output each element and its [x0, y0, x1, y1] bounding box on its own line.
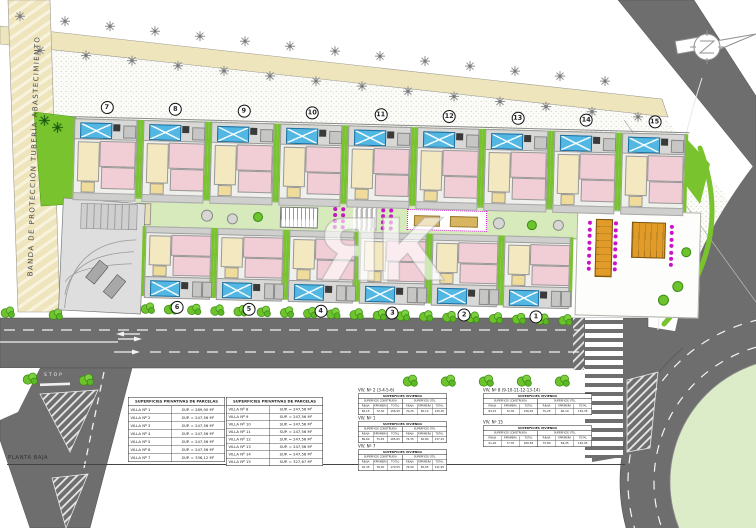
dwelling-table-box: SUPERFICIES VIVIENDASUPERFICIE CONSTRUID…: [358, 394, 447, 416]
dwelling-table-box: SUPERFICIES VIVIENDASUPERFICIE CONSTRUID…: [483, 426, 592, 448]
dwelling-table-values: 91,2077,35168,5575,8064,25140,05: [484, 441, 592, 447]
villa-sup-cell: SUP. = 247,56 M²: [269, 444, 322, 451]
villa-name-cell: VILLA Nº 13: [227, 444, 270, 451]
villa-name-cell: VILLA Nº 15: [227, 459, 270, 466]
value-cell: 92,35: [359, 465, 374, 471]
value-cell: 78,20: [373, 465, 388, 471]
villa-sup-cell: SUP. = 336,12 M²: [171, 454, 224, 462]
parcel-table-box: SUPERFICIES PRIVATIVAS DE PARCELASVILLA …: [226, 397, 323, 466]
dwelling-table-box: SUPERFICIES VIVIENDASUPERFICIE CONSTRUID…: [358, 422, 447, 444]
value-cell: 156,45: [388, 409, 403, 415]
parcel-table-box: SUPERFICIES PRIVATIVAS DE PARCELASVILLA …: [128, 397, 225, 462]
value-cell: 156,45: [520, 409, 538, 415]
value-cell: 170,55: [388, 465, 403, 471]
value-cell: 75,80: [538, 441, 556, 447]
dwelling-table-values: 84,1572,30156,4570,2560,10130,35: [484, 409, 592, 415]
value-cell: 168,55: [520, 441, 538, 447]
villa-sup-cell: SUP. = 247,56 M²: [171, 430, 224, 438]
villa-sup-cell: SUP. = 247,56 M²: [171, 414, 224, 422]
value-cell: 77,35: [502, 441, 520, 447]
table-row: VILLA Nº 12SUP. = 247,56 M²: [227, 436, 323, 444]
villa-name-cell: VILLA Nº 8: [227, 406, 270, 413]
parcel-table: SUPERFICIES PRIVATIVAS DE PARCELASVILLA …: [226, 397, 323, 466]
value-cell: 72,30: [373, 409, 388, 415]
table-row: VILLA Nº 7SUP. = 336,12 M²: [129, 454, 225, 462]
table-row: VILLA Nº 11SUP. = 247,56 M²: [227, 429, 323, 437]
table-row: VILLA Nº 15SUP. = 327,67 M²: [227, 459, 323, 466]
villa-sup-cell: SUP. = 247,56 M²: [171, 422, 224, 430]
table-row: VILLA Nº 14SUP. = 247,56 M²: [227, 451, 323, 459]
value-cell: 70,25: [403, 409, 418, 415]
villa-name-cell: VILLA Nº 12: [227, 436, 270, 443]
villa-sup-cell: SUP. = 247,56 M²: [269, 436, 322, 443]
dwelling-table: VIV. Nº 15SUPERFICIES VIVIENDASUPERFICIE…: [483, 420, 592, 447]
parcel-table: SUPERFICIES PRIVATIVAS DE PARCELASVILLA …: [128, 397, 225, 462]
value-cell: 75,45: [373, 437, 388, 443]
value-cell: 91,20: [484, 441, 502, 447]
villa-sup-cell: SUP. = 289,90 M²: [171, 406, 224, 414]
dwelling-table: VIV. Nº 8 (9-10-11-12-13-14)SUPERFICIES …: [483, 388, 592, 415]
villa-name-cell: VILLA Nº 6: [129, 446, 172, 454]
villa-name-cell: VILLA Nº 10: [227, 421, 270, 428]
villa-name-cell: VILLA Nº 9: [227, 414, 270, 421]
value-cell: 130,35: [432, 409, 446, 415]
dwelling-table: VIV. Nº 1SUPERFICIES VIVIENDASUPERFICIE …: [358, 416, 447, 443]
villa-name-cell: VILLA Nº 14: [227, 451, 270, 458]
value-cell: 72,30: [502, 409, 520, 415]
table-row: VILLA Nº 4SUP. = 247,56 M²: [129, 430, 225, 438]
dwelling-table-values: 84,1572,30156,4570,2560,10130,35: [359, 409, 447, 415]
value-cell: 60,10: [418, 409, 433, 415]
site-plan: 789101112131415 654321 BANDA DE PROTECCI…: [0, 0, 756, 528]
table-row: VILLA Nº 5SUP. = 247,56 M²: [129, 438, 225, 446]
value-cell: 76,90: [403, 465, 418, 471]
value-cell: 84,15: [484, 409, 502, 415]
parcel-table-header: SUPERFICIES PRIVATIVAS DE PARCELAS: [227, 398, 323, 407]
value-cell: 62,80: [418, 437, 433, 443]
villa-sup-cell: SUP. = 247,56 M²: [269, 406, 322, 413]
dwelling-table-values: 89,6075,45165,0574,3562,80137,15: [359, 437, 447, 443]
table-row: VILLA Nº 2SUP. = 247,56 M²: [129, 414, 225, 422]
villa-name-cell: VILLA Nº 2: [129, 414, 172, 422]
villa-sup-cell: SUP. = 327,67 M²: [269, 459, 322, 466]
value-cell: 140,05: [574, 441, 592, 447]
villa-sup-cell: SUP. = 247,56 M²: [171, 438, 224, 446]
watermark-logo: ЯК: [316, 208, 439, 294]
dwelling-table-box: SUPERFICIES VIVIENDASUPERFICIE CONSTRUID…: [358, 450, 447, 472]
villa-sup-cell: SUP. = 247,56 M²: [269, 414, 322, 421]
villa-sup-cell: SUP. = 247,56 M²: [269, 451, 322, 458]
value-cell: 64,25: [556, 441, 574, 447]
value-cell: 84,15: [359, 409, 374, 415]
table-row: VILLA Nº 9SUP. = 247,56 M²: [227, 414, 323, 422]
dwelling-table-box: SUPERFICIES VIVIENDASUPERFICIE CONSTRUID…: [483, 394, 592, 416]
villa-sup-cell: SUP. = 247,56 M²: [269, 421, 322, 428]
value-cell: 60,10: [556, 409, 574, 415]
value-cell: 74,35: [403, 437, 418, 443]
table-row: VILLA Nº 13SUP. = 247,56 M²: [227, 444, 323, 452]
villa-name-cell: VILLA Nº 5: [129, 438, 172, 446]
table-row: VILLA Nº 10SUP. = 247,56 M²: [227, 421, 323, 429]
villa-name-cell: VILLA Nº 1: [129, 406, 172, 414]
villa-name-cell: VILLA Nº 7: [129, 454, 172, 462]
dwelling-table: VIV. Nº 2 (3-4-5-6)SUPERFICIES VIVIENDAS…: [358, 388, 447, 415]
table-row: VILLA Nº 3SUP. = 247,56 M²: [129, 422, 225, 430]
value-cell: 130,35: [574, 409, 592, 415]
villa-sup-cell: SUP. = 247,56 M²: [269, 429, 322, 436]
villa-sup-cell: SUP. = 247,56 M²: [171, 446, 224, 454]
value-cell: 165,05: [388, 437, 403, 443]
table-row: VILLA Nº 1SUP. = 289,90 M²: [129, 406, 225, 414]
dwelling-table-values: 92,3578,20170,5576,9065,05141,95: [359, 465, 447, 471]
villa-name-cell: VILLA Nº 11: [227, 429, 270, 436]
parcel-table-header: SUPERFICIES PRIVATIVAS DE PARCELAS: [129, 398, 225, 407]
value-cell: 89,60: [359, 437, 374, 443]
villa-name-cell: VILLA Nº 4: [129, 430, 172, 438]
value-cell: 141,95: [432, 465, 446, 471]
villa-name-cell: VILLA Nº 3: [129, 422, 172, 430]
table-row: VILLA Nº 6SUP. = 247,56 M²: [129, 446, 225, 454]
table-row: VILLA Nº 8SUP. = 247,56 M²: [227, 406, 323, 414]
value-cell: 70,25: [538, 409, 556, 415]
dwelling-table: VIV. Nº 7SUPERFICIES VIVIENDASUPERFICIE …: [358, 444, 447, 471]
value-cell: 137,15: [432, 437, 446, 443]
value-cell: 65,05: [418, 465, 433, 471]
